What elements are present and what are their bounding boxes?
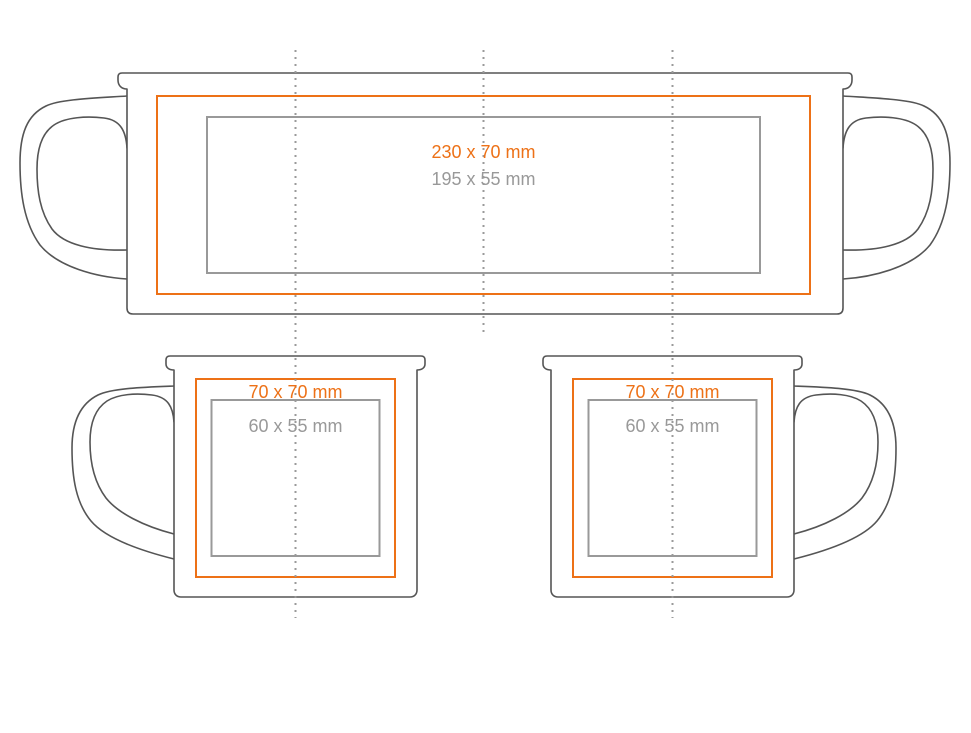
wrap-left-handle-outer-outline <box>20 96 127 279</box>
right-mug-print-area-label: 70 x 70 mm <box>625 382 719 403</box>
mug-print-template-canvas: 230 x 70 mm 195 x 55 mm 70 x 70 mm 60 x … <box>0 0 971 733</box>
wrap-left-handle-inner-outline <box>37 117 127 250</box>
template-line-art <box>0 0 971 733</box>
wrap-right-handle-outer-outline <box>843 96 950 279</box>
wrap-safe-area-label: 195 x 55 mm <box>431 169 535 190</box>
left-mug-safe-area-label: 60 x 55 mm <box>248 416 342 437</box>
right-mug-handle-inner-outline <box>794 394 878 534</box>
left-mug-handle-outer-outline <box>72 386 174 559</box>
wrap-print-area-label: 230 x 70 mm <box>431 142 535 163</box>
wrap-mug-body-outline <box>118 73 852 314</box>
left-mug-handle-inner-outline <box>90 394 174 534</box>
left-mug-print-area-label: 70 x 70 mm <box>248 382 342 403</box>
right-mug-handle-outer-outline <box>794 386 896 559</box>
right-mug-safe-area-label: 60 x 55 mm <box>625 416 719 437</box>
wrap-view <box>20 73 950 314</box>
wrap-right-handle-inner-outline <box>843 117 933 250</box>
